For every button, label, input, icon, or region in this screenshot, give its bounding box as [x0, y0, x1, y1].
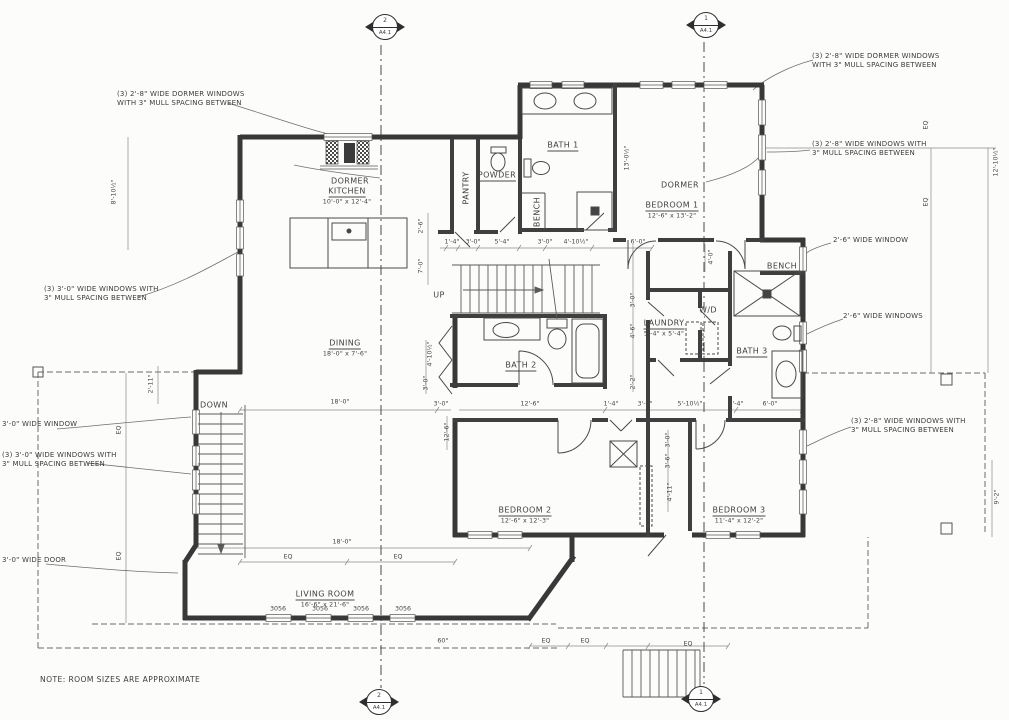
window-callout-9: 3'-0" WIDE DOOR: [2, 556, 66, 565]
dimension-text-9: 7'-0": [418, 259, 425, 274]
dimension-text-30: 18'-0": [333, 539, 352, 546]
window-callout-7: 3'-0" WIDE WINDOW: [2, 420, 77, 429]
marker-arrow-right-icon: [391, 697, 399, 707]
room-label-bedroom-3: BEDROOM 311'-4" x 12'-2": [713, 498, 766, 525]
dimension-text-38: 3056: [312, 606, 328, 613]
room-label-bench: BENCH: [767, 254, 797, 273]
dimension-text-0: 8'-10½": [111, 179, 118, 204]
dimension-text-40: 3056: [395, 606, 411, 613]
room-name: LAUNDRY: [644, 319, 685, 330]
sheet-number: A4.1: [694, 26, 718, 36]
dimension-text-21: 2'-2": [630, 375, 637, 390]
window-callout-0: (3) 2'-8" WIDE DORMER WINDOWS WITH 3" MU…: [117, 90, 245, 109]
section-marker-2-0: 2A4.1: [372, 14, 398, 40]
dimension-text-11: 3'-0": [466, 239, 481, 246]
room-name: DOWN: [200, 401, 228, 411]
room-label-w-d: W/D: [699, 298, 717, 317]
room-name: POWDER: [478, 171, 516, 182]
room-label-laundry: LAUNDRY5'-4" x 5'-4": [644, 311, 685, 338]
window-callout-8: (3) 3'-0" WIDE WINDOWS WITH 3" MULL SPAC…: [2, 451, 117, 470]
room-size: 10'-0" x 12'-4": [323, 199, 372, 206]
section-number: 1: [694, 13, 718, 26]
dimension-text-24: 1'-4": [604, 401, 619, 408]
room-label-bedroom-2: BEDROOM 212'-6" x 12'-3": [499, 498, 552, 525]
room-name: UP: [433, 291, 444, 301]
dimension-text-31: 12'-6": [444, 423, 451, 442]
dimension-text-42: EQ: [542, 638, 551, 645]
dimension-text-36: EQ: [394, 554, 403, 561]
dimension-text-25: 3'-0": [638, 401, 653, 408]
marker-arrow-left-icon: [681, 694, 689, 704]
room-name: LIVING ROOM: [296, 590, 355, 601]
room-size: 12'-6" x 13'-2": [646, 213, 699, 220]
room-name: BATH 1: [547, 141, 578, 152]
stairs: [198, 259, 700, 697]
dimension-text-39: 3056: [353, 606, 369, 613]
section-marker-2-2: 2A4.1: [366, 689, 392, 715]
dimension-text-41: 60°: [437, 638, 448, 645]
room-size: 5'-4" x 5'-4": [644, 331, 685, 338]
dimension-text-29: 18'-0": [331, 399, 350, 406]
room-name: DORMER: [661, 181, 699, 191]
dimension-text-20: 4'-6": [630, 324, 637, 339]
dimension-text-2: EQ: [116, 552, 123, 561]
dimension-text-45: 9'-2": [994, 490, 1001, 505]
room-name: BATH 3: [736, 347, 767, 358]
dimension-text-22: 3'-0": [434, 401, 449, 408]
marker-arrow-right-icon: [397, 22, 405, 32]
window-callout-1: (3) 2'-8" WIDE DORMER WINDOWS WITH 3" MU…: [812, 52, 940, 71]
dimension-text-4: EQ: [923, 121, 930, 130]
room-name: BENCH: [767, 262, 797, 272]
sheet-number: A4.1: [689, 700, 713, 710]
dimension-text-8: 2'-6": [418, 219, 425, 234]
dimension-text-5: EQ: [923, 198, 930, 207]
dimension-text-15: 6'-0": [631, 239, 646, 246]
room-label-up: UP: [433, 283, 444, 302]
dimension-text-3: 2'-11": [148, 375, 155, 394]
dimension-text-1: EQ: [116, 426, 123, 435]
room-name: BATH 2: [505, 361, 536, 372]
marker-arrow-right-icon: [718, 20, 726, 30]
room-name: W/D: [699, 306, 717, 316]
dimension-text-32: 3'-0": [665, 433, 672, 448]
room-name: BENCH: [533, 197, 543, 227]
dimension-text-6: 12'-10½": [993, 147, 1000, 176]
marker-arrow-left-icon: [365, 22, 373, 32]
window-callout-2: (3) 2'-8" WIDE WINDOWS WITH 3" MULL SPAC…: [812, 140, 927, 159]
room-size: 11'-4" x 12'-2": [713, 518, 766, 525]
section-marker-1-1: 1A4.1: [693, 12, 719, 38]
room-name: DINING: [329, 339, 360, 350]
room-size: 12'-6" x 12'-3": [499, 518, 552, 525]
section-number: 2: [367, 690, 391, 703]
section-number: 2: [373, 15, 397, 28]
room-label-living-room: LIVING ROOM16'-6" x 21'-6": [296, 582, 355, 609]
room-name: KITCHEN: [328, 187, 365, 198]
marker-arrow-left-icon: [359, 697, 367, 707]
dimension-text-37: 3056: [270, 606, 286, 613]
room-size: 18'-0" x 7'-6": [323, 351, 367, 358]
room-name: BEDROOM 1: [646, 201, 699, 212]
dimension-text-7: 13'-0½": [624, 145, 631, 170]
dimension-text-28: 6'-0": [763, 401, 778, 408]
dimension-text-14: 4'-10½": [563, 239, 588, 246]
room-name: BEDROOM 3: [713, 506, 766, 517]
section-number: 1: [689, 687, 713, 700]
deck-posts: [33, 367, 952, 534]
dimension-text-18: 3'-0": [423, 376, 430, 391]
dimension-text-44: EQ: [684, 641, 693, 648]
room-name: BEDROOM 2: [499, 506, 552, 517]
window-callout-4: 2'-6" WIDE WINDOWS: [843, 312, 923, 321]
dimension-text-10: 1'-4": [445, 239, 460, 246]
floor-plan-page: DORMERKITCHEN10'-0" x 12'-4"PANTRYPOWDER…: [0, 0, 1009, 720]
plan-note: NOTE: ROOM SIZES ARE APPROXIMATE: [40, 675, 200, 684]
room-label-bath-1: BATH 1: [547, 133, 578, 152]
dimension-text-33: 3'-6": [665, 454, 672, 469]
window-callout-3: 2'-6" WIDE WINDOW: [833, 236, 908, 245]
dimension-text-34: 4'-11": [667, 483, 674, 502]
room-label-bath-3: BATH 3: [736, 339, 767, 358]
room-label-bath-2: BATH 2: [505, 353, 536, 372]
room-label-bedroom-1: BEDROOM 112'-6" x 13'-2": [646, 193, 699, 220]
sheet-number: A4.1: [367, 703, 391, 713]
dimension-text-19: 3'-0": [630, 293, 637, 308]
room-label-powder: POWDER: [478, 163, 516, 182]
dimension-text-17: 4'-10½": [427, 341, 434, 366]
dimension-text-26: 5'-10½": [677, 401, 702, 408]
dimension-text-27: 1'-4": [729, 401, 744, 408]
room-label-bench: BENCH: [525, 197, 544, 227]
dormer-window-blocks: [320, 141, 378, 169]
window-callout-6: (3) 3'-0" WIDE WINDOWS WITH 3" MULL SPAC…: [44, 285, 159, 304]
section-marker-1-3: 1A4.1: [688, 686, 714, 712]
window-callout-5: (3) 2'-8" WIDE WINDOWS WITH 3" MULL SPAC…: [851, 417, 966, 436]
dimension-text-12: 5'-4": [495, 239, 510, 246]
marker-arrow-left-icon: [686, 20, 694, 30]
room-label-down: DOWN: [200, 393, 228, 412]
room-label-pantry: PANTRY: [454, 172, 473, 205]
room-label-kitchen: KITCHEN10'-0" x 12'-4": [323, 179, 372, 206]
dimension-text-23: 12'-6": [521, 401, 540, 408]
room-label-dormer: DORMER: [661, 173, 699, 192]
room-label-dining: DINING18'-0" x 7'-6": [323, 331, 367, 358]
dimension-text-13: 3'-0": [538, 239, 553, 246]
interior-walls: [438, 83, 805, 537]
marker-arrow-right-icon: [713, 694, 721, 704]
dimension-text-43: EQ: [581, 638, 590, 645]
dimension-text-35: EQ: [284, 554, 293, 561]
room-name: PANTRY: [462, 172, 472, 205]
sheet-number: A4.1: [373, 28, 397, 38]
dimension-text-16: 4'-0": [708, 250, 715, 265]
